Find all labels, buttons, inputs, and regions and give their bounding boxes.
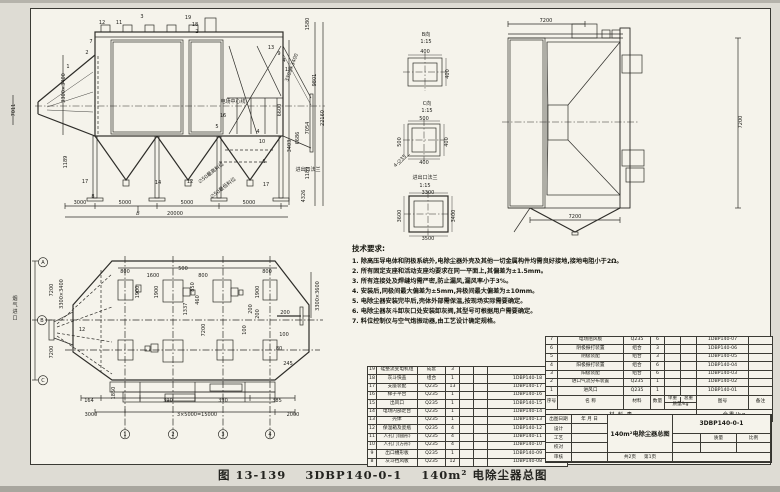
table-cell: 12 <box>368 425 377 433</box>
table-cell: 4 <box>446 425 460 433</box>
table-cell <box>460 450 474 458</box>
dimension-label: 3600 <box>397 210 403 223</box>
tech-requirement-item: 1. 除高压导电体和阴极系统外,电除尘器外壳及其他一切金属构件均需良好接地,接地… <box>352 257 654 267</box>
table-cell: 人孔门(方形) <box>377 442 418 450</box>
dimension-label: 8 <box>91 194 94 200</box>
header-name: 名 称 <box>558 395 624 409</box>
dimension-label: C向 <box>423 100 432 107</box>
dimension-label: 3300×3400 <box>61 73 67 103</box>
dimension-label: 245 <box>283 361 293 367</box>
table-cell <box>474 425 488 433</box>
dimension-label: 12 <box>99 20 105 26</box>
side-hopper <box>508 208 620 235</box>
table-cell: 1DBP140-06 <box>697 345 749 353</box>
table-cell: 硅整流变电机组 <box>377 367 418 375</box>
table-cell <box>474 383 488 391</box>
mass-label: 质量 <box>701 434 737 443</box>
pages-total: 共2页 <box>624 454 636 460</box>
dimension-label: 400 <box>420 49 430 55</box>
table-cell <box>474 400 488 408</box>
table-cell <box>681 362 697 370</box>
table-cell: Q235 <box>418 400 446 408</box>
table-cell: 组合 <box>624 370 651 378</box>
dimension-label: 1189 <box>63 156 69 169</box>
process-label: 工艺 <box>546 434 572 443</box>
table-cell <box>460 433 474 441</box>
table-cell <box>681 337 697 345</box>
table-cell: 1 <box>651 387 665 395</box>
caption-drawing-number: 3DBP140-0-1 <box>305 468 402 482</box>
figure-number: 图 13-139 <box>218 468 286 482</box>
table-cell <box>460 400 474 408</box>
table-cell: 人孔门(圆形) <box>377 433 418 441</box>
parts-list-right: 7电场阻风板Q23561DBP140-076阴极振打装置组合31DBP140-0… <box>545 336 773 422</box>
table-cell: 6 <box>651 362 665 370</box>
header-dwg-no: 图号 <box>697 395 749 409</box>
dimension-label: 80 <box>276 346 282 352</box>
table-cell: 5 <box>546 353 558 361</box>
plate-stack <box>508 38 545 208</box>
table-cell: 组合 <box>418 375 446 383</box>
table-cell <box>681 387 697 395</box>
table-cell: Q235 <box>418 433 446 441</box>
dimension-label: 800 <box>198 273 208 279</box>
table-cell <box>460 442 474 450</box>
page-no: 第1页 <box>644 454 656 460</box>
table-cell <box>474 392 488 400</box>
table-cell: 10 <box>368 442 377 450</box>
table-cell <box>681 378 697 386</box>
tech-requirement-item: 6. 电除尘器灰斗卸灰口处安装卸灰阀,其型号可根据用户需要确定。 <box>352 307 654 317</box>
dimension-label: 7200 <box>49 284 55 297</box>
table-cell <box>460 417 474 425</box>
dimension-label: 5000 <box>181 200 194 206</box>
table-cell: 6 <box>651 370 665 378</box>
table-cell: 16 <box>368 392 377 400</box>
table-row: 1进风口Q23511DBP140-01 <box>546 387 773 395</box>
caption-title: 140m² 电除尘器总图 <box>421 468 547 482</box>
table-row: 17支座装配Q235131DBP140-17 <box>368 383 568 391</box>
header-weight: 单重 总重 质量/kg <box>665 395 697 409</box>
table-row: 16梯子平台Q23511DBP140-16 <box>368 392 568 400</box>
inlet-outlet-flange-detail <box>404 191 453 237</box>
table-cell <box>665 362 681 370</box>
table-row: 14电场内部走台Q23511DBP140-14 <box>368 408 568 416</box>
table-cell: 组合 <box>624 353 651 361</box>
dimension-label: 3403 <box>287 140 293 153</box>
table-cell: 19 <box>368 367 377 375</box>
dimension-label: 200 <box>280 310 290 316</box>
dimension-label: 850 <box>190 282 196 292</box>
dimension-label: 进出口法兰 <box>412 174 437 181</box>
table-cell: 1DBP140-07 <box>697 337 749 345</box>
table-cell <box>681 353 697 361</box>
table-cell: 组合 <box>624 345 651 353</box>
dimension-label: 3400 <box>451 210 457 223</box>
dimension-label: 3300×3600 <box>315 281 321 311</box>
table-cell: 1 <box>446 400 460 408</box>
table-cell: 3 <box>651 345 665 353</box>
dimension-label: 3500 <box>422 236 435 242</box>
dimension-label: 3×5000=15000 <box>177 412 217 418</box>
table-cell <box>665 345 681 353</box>
table-cell: 1DBP140-03 <box>697 370 749 378</box>
table-cell <box>460 458 474 466</box>
dimension-label: 6 <box>262 159 265 165</box>
designer-label: 设计 <box>546 424 572 433</box>
technical-requirements: 技术要求: 1. 除高压导电体和阴极系统外,电除尘器外壳及其他一切金属构件均需良… <box>352 243 654 327</box>
parts-list-left-rows: 19硅整流变电机组成套318灰斗快盖组合11DBP140-1817支座装配Q23… <box>368 367 568 467</box>
table-row: 8灰斗挡风板Q235121DBP140-08 <box>368 458 568 466</box>
table-cell <box>665 387 681 395</box>
figure-caption: 图 13-139 3DBP140-0-1 140m² 电除尘器总图 <box>218 467 618 483</box>
table-cell <box>665 353 681 361</box>
table-cell: 灰斗挡风板 <box>377 458 418 466</box>
table-cell: 15 <box>368 400 377 408</box>
drawing-title: 140m²电除尘器总图 <box>608 415 673 453</box>
table-cell <box>460 367 474 375</box>
table-cell: 6 <box>546 345 558 353</box>
table-cell: 阳极装配 <box>558 370 624 378</box>
table-cell <box>460 383 474 391</box>
dimension-label: 3300 <box>422 190 435 196</box>
dimension-label: 390 <box>163 398 173 404</box>
dimension-label: 14 <box>155 180 161 186</box>
dimension-label: 4326 <box>301 190 307 203</box>
dimension-label: 2 <box>195 29 198 35</box>
table-cell <box>749 353 773 361</box>
table-cell: 1DBP140-01 <box>697 387 749 395</box>
table-cell: 进口气流分布装置 <box>558 378 624 386</box>
auditor-value <box>572 453 608 462</box>
tech-requirements-title: 技术要求: <box>352 243 654 254</box>
dimension-label: 22160 <box>320 110 326 126</box>
dimension-label: 3 <box>140 14 143 20</box>
table-row: 15出风口Q23511DBP140-15 <box>368 400 568 408</box>
dimension-label: 3000 <box>85 412 98 418</box>
table-cell: 1DBP140-05 <box>697 353 749 361</box>
table-cell: 4 <box>446 442 460 450</box>
side-ladder-column <box>620 28 644 208</box>
table-cell: 组合 <box>624 362 651 370</box>
dimension-label: 4 <box>282 58 285 64</box>
plan-view: 8001600500800800190019001900850460133772… <box>5 252 335 462</box>
dimension-label: 1580 <box>305 18 311 31</box>
collecting-plates-field <box>111 40 183 134</box>
table-cell <box>665 337 681 345</box>
dimension-label: 5 <box>215 124 218 130</box>
tech-requirement-item: 2. 所有固定支座和活动支座均要求在同一平面上,其偏差为±1.5mm。 <box>352 267 654 277</box>
table-cell: 8 <box>368 458 377 466</box>
header-remark: 备注 <box>749 395 773 409</box>
dimension-label: 9801 <box>312 74 318 87</box>
table-cell: 电场阻风板 <box>558 337 624 345</box>
table-cell: 1 <box>446 375 460 383</box>
table-cell: 9 <box>368 450 377 458</box>
table-cell: 13 <box>368 417 377 425</box>
dimension-label: 11 <box>116 20 122 26</box>
title-block: 出图日期 年 月 日 设计 工艺 校对 审核 140m²电除尘器总图 共2页 第… <box>545 414 772 463</box>
dimension-label: 7054 <box>305 122 311 135</box>
dimension-label: 烟气进口 <box>12 295 17 322</box>
detail-views: B向1:15400400C向1:155005004004004-∅35进出口法兰… <box>393 28 468 263</box>
dimension-label: 7200 <box>738 116 744 129</box>
table-cell <box>474 417 488 425</box>
front-elevation-view: 12113191827211394154106171651781412B3000… <box>5 10 330 235</box>
tech-requirement-item: 5. 电除尘器安装完毕后,壳体外部需保温,按现场实际需要确定。 <box>352 297 654 307</box>
table-cell: Q235 <box>418 450 446 458</box>
table-cell: Q235 <box>418 425 446 433</box>
dimension-label: 3000 <box>74 200 87 206</box>
dimension-label: 460 <box>195 295 201 305</box>
dimension-label: 1:15 <box>420 39 431 45</box>
dimension-label: 164 <box>84 398 94 404</box>
dimension-label: 7200 <box>540 18 553 24</box>
table-cell: 3 <box>446 367 460 375</box>
dimension-label: 400 <box>419 160 429 166</box>
dimension-label: 100 <box>279 332 289 338</box>
dimension-label: ∅50最低料位 <box>209 176 238 200</box>
table-cell <box>474 367 488 375</box>
table-cell: Q235 <box>624 337 651 345</box>
blank-cell <box>673 453 771 462</box>
table-cell <box>681 370 697 378</box>
dimension-label: 500 <box>178 266 188 272</box>
side-elevation-view: 720072007200 <box>498 10 748 235</box>
page-info: 共2页 第1页 <box>608 453 673 462</box>
dimension-label: 1900 <box>135 286 141 299</box>
table-cell: 阴极振打装置 <box>558 345 624 353</box>
dimension-label: 4-∅35 <box>393 154 408 169</box>
table-cell <box>474 433 488 441</box>
table-cell: 12 <box>446 458 460 466</box>
table-cell: Q235 <box>418 408 446 416</box>
auditor-label: 审核 <box>546 453 572 462</box>
table-cell: 出口槽形板 <box>377 450 418 458</box>
table-row: 5阴极装配组合31DBP140-05 <box>546 353 773 361</box>
dimension-label: 电场中心线 <box>220 98 245 105</box>
table-cell <box>749 337 773 345</box>
table-cell: 保温箱及瓷瓶 <box>377 425 418 433</box>
table-cell: 1DBP140-04 <box>697 362 749 370</box>
dimension-label: C <box>41 378 45 384</box>
table-cell <box>665 370 681 378</box>
discharge-wires-field <box>189 40 223 134</box>
dimension-label: 1850 <box>111 387 117 400</box>
table-cell: Q235 <box>418 442 446 450</box>
blank-cell <box>737 443 771 452</box>
dimension-label: 800 <box>120 269 130 275</box>
table-cell: 1 <box>446 408 460 416</box>
table-cell: 支座装配 <box>377 383 418 391</box>
dimension-label: 6600 <box>277 104 283 117</box>
table-cell: 7 <box>546 337 558 345</box>
table-cell: 进风口 <box>558 387 624 395</box>
table-cell: 梯子平台 <box>377 392 418 400</box>
table-cell <box>460 425 474 433</box>
table-cell: 3 <box>651 353 665 361</box>
dimension-label: 12 <box>79 327 85 333</box>
dimension-label: 500 <box>419 116 429 122</box>
table-row: 4阳极振打装置组合61DBP140-04 <box>546 362 773 370</box>
checker-label: 校对 <box>546 443 572 452</box>
table-cell: 13 <box>446 383 460 391</box>
dimension-label: 19 <box>185 15 191 21</box>
dimension-label: 3300×3400 <box>59 279 65 309</box>
table-cell <box>749 378 773 386</box>
table-cell: 壳体 <box>377 417 418 425</box>
process-value <box>572 434 608 443</box>
table-row: 13壳体Q23511DBP140-13 <box>368 417 568 425</box>
table-cell: 成套 <box>418 367 446 375</box>
table-row: 11人孔门(圆形)Q23541DBP140-11 <box>368 433 568 441</box>
table-cell: Q235 <box>418 458 446 466</box>
table-cell: 1 <box>546 387 558 395</box>
dimension-label: 2 <box>85 50 88 56</box>
table-row: 2进口气流分布装置Q23511DBP140-02 <box>546 378 773 386</box>
blank-cell <box>673 434 701 443</box>
tech-requirement-item: 7. 料位控制仪与空气炮振动器,由工艺设计确定规格。 <box>352 317 654 327</box>
table-row: 19硅整流变电机组成套3 <box>368 367 568 375</box>
table-cell: 3 <box>546 370 558 378</box>
table-row: 6阴极振打装置组合31DBP140-06 <box>546 345 773 353</box>
table-cell: 1DBP140-02 <box>697 378 749 386</box>
dimension-label: 4 <box>268 432 271 438</box>
dimension-label: 1900 <box>255 286 261 299</box>
blank-cell <box>673 443 701 452</box>
parts-list-right-rows: 7电场阻风板Q23561DBP140-076阴极振打装置组合31DBP140-0… <box>546 337 773 396</box>
blank-cell <box>701 443 737 452</box>
table-cell: 1 <box>446 450 460 458</box>
dimension-label: 390 <box>218 398 228 404</box>
table-row: 10人孔门(方形)Q23541DBP140-10 <box>368 442 568 450</box>
table-cell <box>474 408 488 416</box>
table-cell: 1 <box>651 378 665 386</box>
table-row: 7电场阻风板Q23561DBP140-07 <box>546 337 773 345</box>
outlet-truss-braces <box>227 46 283 134</box>
dimension-label: 7200 <box>49 346 55 359</box>
table-cell <box>749 345 773 353</box>
dimension-label: 17 <box>82 179 88 185</box>
dimension-label: 1337 <box>183 303 189 316</box>
table-cell <box>474 375 488 383</box>
table-cell <box>474 442 488 450</box>
dimension-label: 500 <box>397 137 403 147</box>
table-cell: 阳极振打装置 <box>558 362 624 370</box>
dimension-label: 17 <box>263 182 269 188</box>
table-cell: Q235 <box>418 392 446 400</box>
dimension-label: 20000 <box>167 211 183 217</box>
dimension-label: 7 <box>89 39 92 45</box>
dimension-label: 2 <box>171 432 174 438</box>
table-cell: Q235 <box>624 387 651 395</box>
dimension-label: 18 <box>192 22 198 28</box>
dimension-label: 10 <box>259 139 265 145</box>
roof-line <box>508 24 623 38</box>
table-cell <box>749 370 773 378</box>
dimension-label: 7011 <box>11 104 17 117</box>
dimension-label: 1 <box>66 64 69 70</box>
table-cell: 灰斗快盖 <box>377 375 418 383</box>
dimension-label: 1900 <box>154 286 160 299</box>
table-cell: Q235 <box>418 383 446 391</box>
table-cell <box>474 458 488 466</box>
table-cell: 出风口 <box>377 400 418 408</box>
dimension-label: 1600 <box>147 273 160 279</box>
table-cell: 11 <box>368 433 377 441</box>
table-cell: 14 <box>368 408 377 416</box>
dimension-label: 400 <box>445 69 451 79</box>
dimension-label: 1:15 <box>421 108 432 114</box>
table-row: 9出口槽形板Q23511DBP140-09 <box>368 450 568 458</box>
dimension-label: 13 <box>268 45 274 51</box>
dimension-label: 9 <box>277 51 280 57</box>
table-cell <box>749 362 773 370</box>
table-cell: 阴极装配 <box>558 353 624 361</box>
dimension-label: 100 <box>242 325 248 335</box>
dimension-label: B <box>136 211 140 217</box>
scale-label: 比例 <box>737 434 771 443</box>
table-cell: 电场内部走台 <box>377 408 418 416</box>
table-cell: 4 <box>546 362 558 370</box>
table-cell <box>474 450 488 458</box>
parts-list-left: 19硅整流变电机组成套318灰斗快盖组合11DBP140-1817支座装配Q23… <box>367 366 568 467</box>
dimension-label: 3 <box>221 432 224 438</box>
designer-value <box>572 424 608 433</box>
outlet-diffuser <box>547 42 620 195</box>
table-cell <box>460 375 474 383</box>
table-row: 3阳极装配组合61DBP140-03 <box>546 370 773 378</box>
tech-requirements-list: 1. 除高压导电体和阴极系统外,电除尘器外壳及其他一切金属构件均需良好接地,接地… <box>352 257 654 327</box>
dimension-label: 1 <box>123 432 126 438</box>
dimension-label: A <box>41 260 45 266</box>
scan-edge-band <box>0 486 780 492</box>
drawing-number: 3DBP140-0-1 <box>673 415 771 434</box>
tech-requirement-item: 3. 所有连接处及焊缝均需严密,防止漏风,漏风率小于3%。 <box>352 277 654 287</box>
table-cell <box>460 408 474 416</box>
header-qty: 数量 <box>651 395 665 409</box>
dimension-label: 200 <box>255 309 261 319</box>
scanned-engineering-drawing: { "caption": {"fig_no": "图 13-139", "dra… <box>0 0 780 492</box>
dimension-label: 5000 <box>243 200 256 206</box>
table-cell <box>749 387 773 395</box>
dimension-label: 12 <box>187 179 193 185</box>
table-cell: 6 <box>651 337 665 345</box>
table-cell: 18 <box>368 375 377 383</box>
table-cell: Q235 <box>624 378 651 386</box>
header-material: 材料 <box>624 395 651 409</box>
table-cell: 1 <box>446 417 460 425</box>
dimension-label: B <box>40 318 44 324</box>
table-cell <box>681 345 697 353</box>
table-cell: 2 <box>546 378 558 386</box>
table-row: 12保温箱及瓷瓶Q23541DBP140-12 <box>368 425 568 433</box>
dimension-label: 7200 <box>569 214 582 220</box>
table-cell <box>665 378 681 386</box>
table-cell: 4 <box>446 433 460 441</box>
header-seq: 序号 <box>546 395 558 409</box>
table-cell: Q235 <box>418 417 446 425</box>
dimension-label: 400 <box>444 137 450 147</box>
dimension-label: 800 <box>262 269 272 275</box>
dimension-label: 200 <box>248 304 254 314</box>
date-value: 年 月 日 <box>572 415 608 424</box>
header-weight-unit: 质量/kg <box>665 403 696 408</box>
detail-b-view <box>403 53 447 91</box>
dimension-label: 4 <box>256 129 259 135</box>
inlet-cone-hidden-lines <box>57 270 112 374</box>
date-label: 出图日期 <box>546 415 572 424</box>
